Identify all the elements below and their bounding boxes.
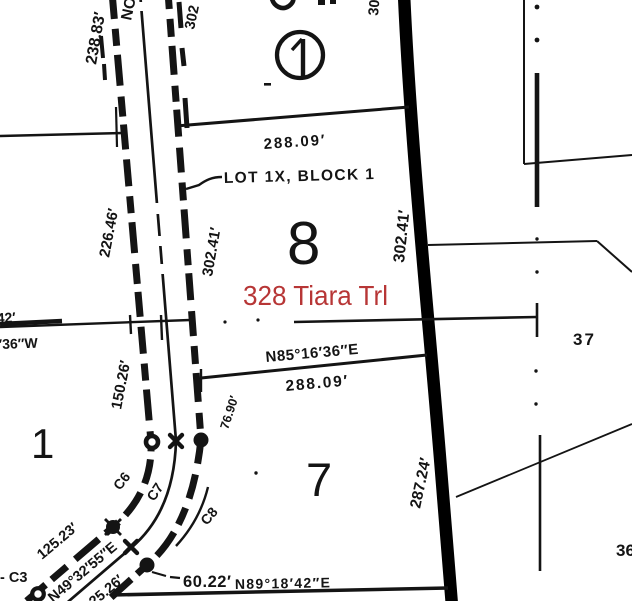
- svg-text:328 Tiara Trl: 328 Tiara Trl: [243, 280, 388, 311]
- svg-text:60.22′: 60.22′: [183, 573, 231, 591]
- svg-text:7: 7: [306, 453, 332, 506]
- svg-text:′36″W: ′36″W: [0, 335, 39, 352]
- svg-text:8: 8: [287, 210, 320, 277]
- svg-text:- C3: - C3: [0, 570, 27, 586]
- svg-text:1: 1: [31, 420, 54, 467]
- svg-text:36′: 36′: [616, 541, 632, 560]
- svg-text:42′: 42′: [0, 309, 17, 326]
- svg-text:N89°18′42″E: N89°18′42″E: [235, 574, 330, 592]
